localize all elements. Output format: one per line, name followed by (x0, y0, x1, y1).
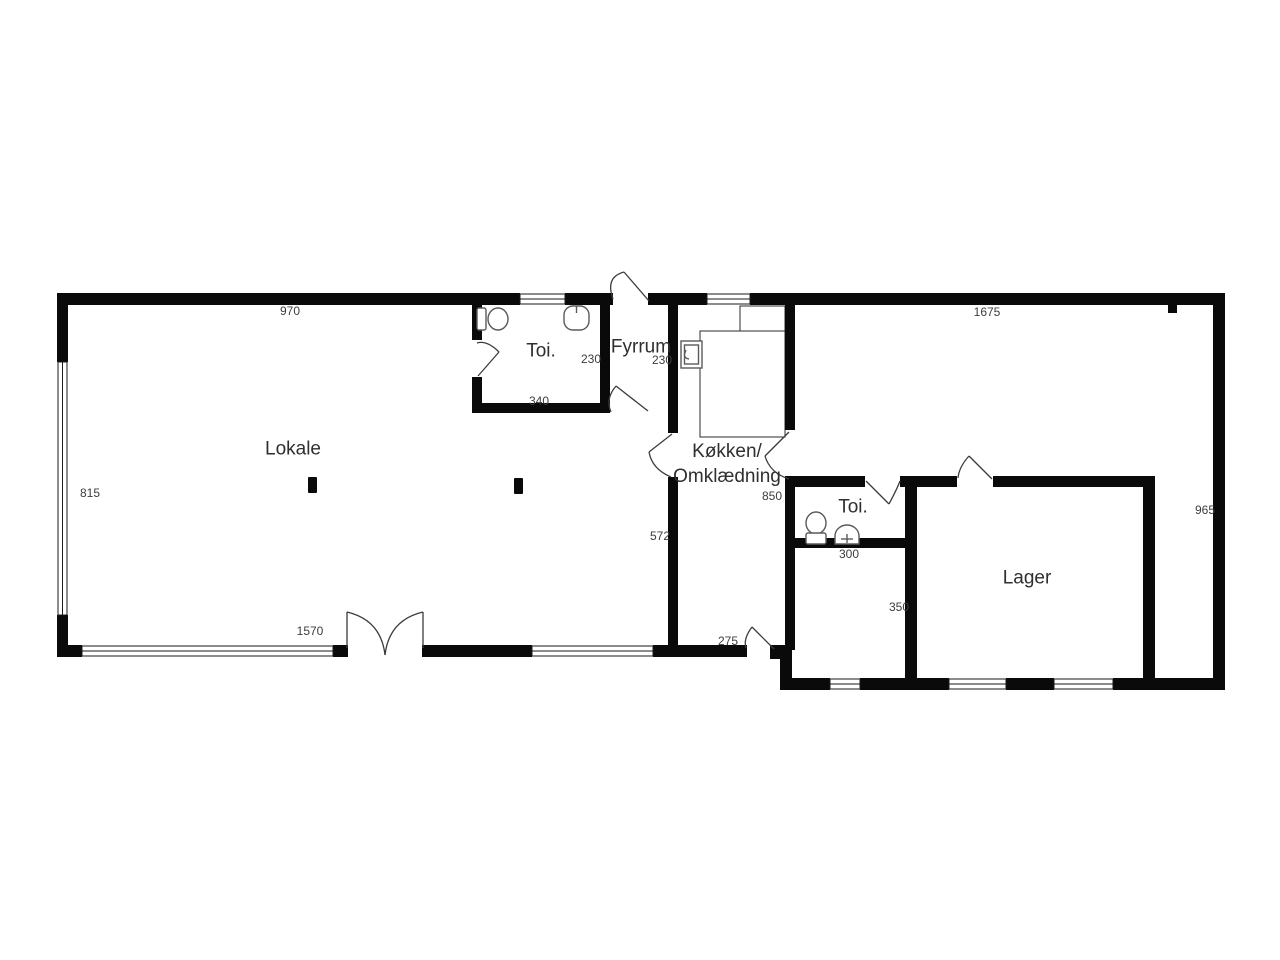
dim-kitchen-depth: 850 (762, 489, 782, 503)
dim-left-side: 815 (80, 486, 100, 500)
door-swing-icon (969, 456, 992, 479)
room-label-toi2: Toi. (838, 495, 868, 520)
room-label-kitchen-line2: Omklædning (673, 464, 781, 489)
door-swing-icon (624, 272, 649, 301)
dim-toi2-width: 300 (839, 547, 859, 561)
toilet-icon (806, 512, 826, 544)
dim-toi1-width: 340 (529, 394, 549, 408)
sink-icon (835, 525, 859, 544)
door-swing-icon (752, 627, 774, 649)
door-swing-icon (649, 434, 672, 452)
dim-hall-width: 350 (889, 600, 909, 614)
toilet-icon (477, 308, 508, 330)
column-icon (514, 478, 523, 494)
dim-top-right: 1675 (974, 305, 1001, 319)
floorplan-drawing (0, 0, 1280, 960)
dim-back-door: 275 (718, 634, 738, 648)
room-label-toi1: Toi. (526, 339, 556, 364)
sink-icon (564, 306, 589, 330)
room-label-kitchen-line1: Køkken/ (673, 439, 781, 464)
floorplan-page: Lokale Toi. Fyrrum Køkken/ Omklædning To… (0, 0, 1280, 960)
column-icon (308, 477, 317, 493)
dim-fyrrum-depth: 230 (652, 353, 672, 367)
door-swing-icon (616, 386, 648, 411)
room-label-kitchen: Køkken/ Omklædning (673, 439, 781, 489)
dim-right-side: 965 (1195, 503, 1215, 517)
door-swing-icon (478, 352, 499, 376)
interior-walls (472, 305, 1155, 690)
dim-lokale-wall: 572 (650, 529, 670, 543)
dim-toi1-depth: 230 (581, 352, 601, 366)
kitchen-counter (700, 306, 785, 437)
water-heater-icon (681, 341, 702, 368)
room-label-lager: Lager (1003, 566, 1052, 591)
door-swing-icon (866, 481, 889, 504)
room-label-lokale: Lokale (265, 437, 321, 462)
dim-front-window: 1570 (297, 624, 324, 638)
dim-top-left: 970 (280, 304, 300, 318)
